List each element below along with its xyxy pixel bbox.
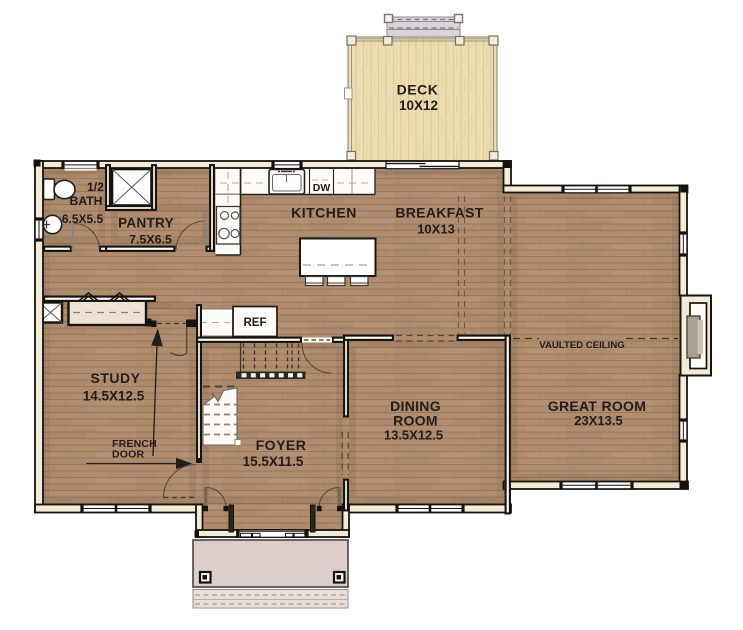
svg-text:VAULTED CEILING: VAULTED CEILING: [539, 340, 624, 351]
svg-text:DW: DW: [313, 182, 331, 194]
svg-text:10X13: 10X13: [417, 222, 455, 237]
svg-text:FOYER: FOYER: [256, 437, 307, 453]
svg-text:DECK: DECK: [397, 82, 439, 98]
svg-text:REF: REF: [244, 317, 267, 329]
svg-text:BREAKFAST: BREAKFAST: [395, 205, 483, 221]
svg-text:14.5X12.5: 14.5X12.5: [83, 389, 145, 404]
svg-text:DOOR: DOOR: [112, 449, 145, 461]
svg-text:KITCHEN: KITCHEN: [291, 205, 357, 221]
svg-text:15.5X11.5: 15.5X11.5: [243, 454, 304, 469]
svg-text:7.5X6.5: 7.5X6.5: [129, 232, 172, 246]
svg-text:PANTRY: PANTRY: [118, 216, 174, 231]
svg-text:STUDY: STUDY: [91, 370, 141, 386]
svg-text:GREAT ROOM: GREAT ROOM: [548, 398, 646, 414]
svg-text:23X13.5: 23X13.5: [574, 413, 622, 428]
svg-text:10X12: 10X12: [399, 98, 438, 113]
svg-text:BATH: BATH: [70, 194, 103, 208]
svg-text:13.5X12.5: 13.5X12.5: [384, 428, 443, 443]
svg-text:ROOM: ROOM: [393, 413, 438, 429]
svg-text:1/2: 1/2: [87, 180, 104, 194]
svg-text:6.5X5.5: 6.5X5.5: [62, 212, 104, 226]
